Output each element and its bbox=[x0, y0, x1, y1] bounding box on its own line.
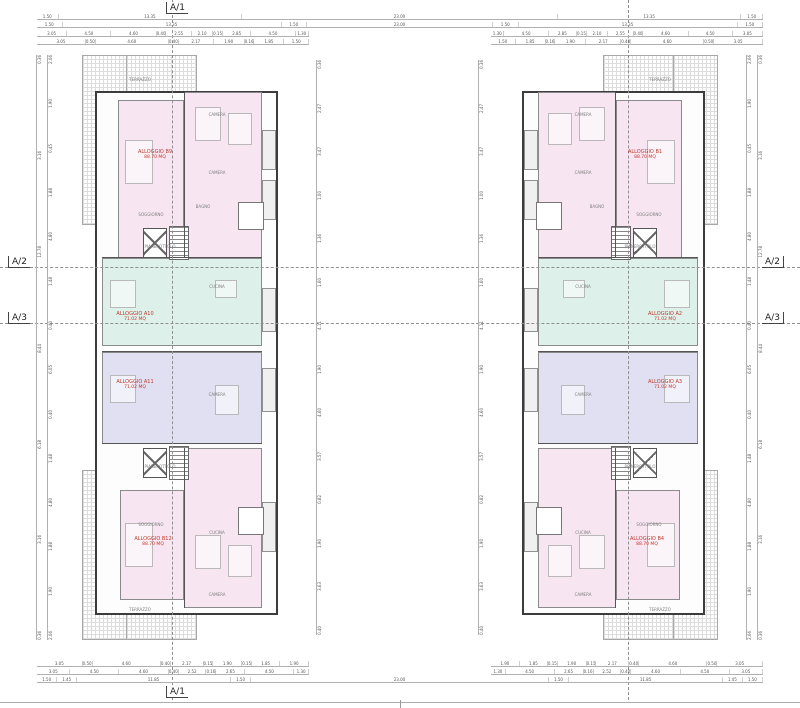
building-left-room-label: SOGGIORNO bbox=[138, 213, 163, 217]
dimension-value: 4.50 bbox=[689, 31, 733, 36]
axis-marker-a2-right: A/2 bbox=[762, 256, 784, 268]
dimension-value: 1.90 bbox=[747, 99, 754, 108]
dimension-value: 1.50 bbox=[741, 14, 763, 19]
dimension-value: 1.85 bbox=[516, 39, 546, 44]
dimension-value: 1.50 bbox=[738, 22, 764, 27]
dimension-row: 1.5013.3523.0013.351.50 bbox=[37, 13, 763, 20]
building-right-room-label: CUCINA bbox=[575, 285, 590, 289]
dimension-value: 1.45 bbox=[57, 677, 77, 682]
dimension-value: 0.15 bbox=[548, 661, 558, 666]
floor-plan-drawing: A/1 A/1 A/2 A/2 A/3 A/3 1.5013.3523.0013… bbox=[0, 0, 800, 708]
axis-marker-a3-left: A/3 bbox=[8, 312, 30, 324]
axis-dash-vertical bbox=[172, 0, 173, 700]
dimension-value: 1.60 bbox=[479, 278, 486, 287]
dimension-value: 4.50 bbox=[681, 669, 730, 674]
building-left-furniture bbox=[228, 545, 252, 577]
building-left-balcony bbox=[262, 288, 276, 332]
building-left-balcony bbox=[262, 180, 276, 220]
building-right-apartment-label: ALLOGGIO B488.70 MQ bbox=[630, 536, 664, 548]
dimension-value: 0.36 bbox=[758, 55, 765, 64]
dimension-value: 6.05 bbox=[48, 365, 55, 374]
axis-marker-a1-bottom: A/1 bbox=[166, 686, 188, 698]
dimension-value: 4.60 bbox=[93, 661, 161, 666]
building-right-wall bbox=[615, 92, 616, 258]
dimension-value: 6.18 bbox=[758, 440, 765, 449]
dimension-value: 1.90 bbox=[317, 365, 324, 374]
dimension-column: 2.061.900.451.884.801.480.406.050.401.48… bbox=[746, 55, 754, 640]
dimension-value: 1.88 bbox=[747, 542, 754, 551]
building-left-room-label: BAGNO bbox=[196, 205, 211, 209]
building-right-balcony bbox=[524, 288, 538, 332]
building-right-wall bbox=[538, 351, 698, 352]
building-left-technical-room bbox=[238, 507, 264, 535]
dimension-value: 2.06 bbox=[747, 55, 754, 64]
dimension-value: 2.17 bbox=[171, 661, 204, 666]
building-left-furniture bbox=[110, 280, 136, 308]
building-right-wall bbox=[538, 443, 698, 444]
building-left-apartment-label: ALLOGGIO A1071.02 MQ bbox=[116, 311, 153, 323]
dimension-value: 4.80 bbox=[747, 232, 754, 241]
building-right-room-label: CAMERA bbox=[575, 171, 592, 175]
dimension-value: 0.45 bbox=[48, 144, 55, 153]
dimension-value: 4.50 bbox=[506, 669, 555, 674]
dimension-row: 23.00 bbox=[307, 21, 493, 28]
dimension-value: 2.52 bbox=[594, 669, 622, 674]
dimension-value: 0.40 bbox=[621, 39, 631, 44]
dimension-value: 2.47 bbox=[479, 104, 486, 113]
dimension-value: 0.40 bbox=[479, 626, 486, 635]
building-right-technical-room bbox=[536, 202, 562, 230]
apartment-area: 71.02 MQ bbox=[116, 385, 153, 391]
building-right-elevator-shaft bbox=[633, 448, 657, 478]
building-left-wall bbox=[102, 351, 262, 352]
building-right-room-label: SOGGIORNO bbox=[636, 213, 661, 217]
dimension-value: 4.60 bbox=[479, 408, 486, 417]
building-left-apartment-label: ALLOGGIO B988.70 MQ bbox=[138, 149, 172, 161]
building-right-technical-room bbox=[536, 507, 562, 535]
dimension-value: 2.52 bbox=[179, 669, 207, 674]
dimension-value: 3.16 bbox=[37, 535, 44, 544]
building-left-wall bbox=[184, 448, 185, 608]
dimension-value: 3.05 bbox=[717, 661, 763, 666]
dimension-value: 0.40 bbox=[747, 410, 754, 419]
axis-dash-horizontal bbox=[0, 267, 800, 268]
dimension-value: 2.85 bbox=[549, 31, 577, 36]
dimension-value: 0.40 bbox=[169, 669, 179, 674]
dimension-value: 1.90 bbox=[479, 365, 486, 374]
building-left-furniture bbox=[228, 113, 252, 145]
axis-marker-a1-top: A/1 bbox=[166, 2, 188, 14]
dimension-row: 1.304.502.650.162.520.404.604.503.05 bbox=[491, 668, 763, 675]
building-left-room-label: CUCINA bbox=[209, 531, 224, 535]
dimension-value: 2.65 bbox=[216, 669, 245, 674]
dimension-value: 3.57 bbox=[317, 452, 324, 461]
dimension-value: 0.82 bbox=[317, 495, 324, 504]
building-left-elevator-shaft bbox=[143, 448, 167, 478]
building-left-room-label: PIANEROTTOLO bbox=[145, 465, 176, 469]
dimension-row: 1.304.502.850.152.102.550.404.604.503.05 bbox=[491, 30, 763, 37]
building-right-room-label: CAMERA bbox=[575, 393, 592, 397]
dimension-value: 1.50 bbox=[37, 677, 57, 682]
dimension-value: 4.50 bbox=[67, 31, 111, 36]
building-left-room-label: CAMERA bbox=[209, 593, 226, 597]
dimension-value: 4.80 bbox=[48, 498, 55, 507]
dimension-value: 4.60 bbox=[119, 669, 169, 674]
dimension-value: 23.00 bbox=[242, 14, 558, 19]
dimension-value: 1.50 bbox=[37, 22, 63, 27]
apartment-area: 88.70 MQ bbox=[630, 542, 664, 548]
dimension-value: 0.50 bbox=[83, 661, 93, 666]
dimension-value: 1.50 bbox=[549, 677, 569, 682]
building-right-room-label: CAMERA bbox=[575, 113, 592, 117]
dimension-value: 23.00 bbox=[251, 677, 549, 682]
building-right-room-label: CAMERA bbox=[575, 593, 592, 597]
dimension-value: 1.30 bbox=[491, 31, 504, 36]
building-right-wall bbox=[538, 257, 698, 258]
dimension-value: 0.15 bbox=[587, 661, 597, 666]
dimension-value: 1.45 bbox=[723, 677, 743, 682]
building-left-furniture bbox=[125, 140, 153, 184]
dimension-value: 4.50 bbox=[251, 31, 295, 36]
dimension-value: 0.40 bbox=[634, 31, 644, 36]
dimension-value: 4.60 bbox=[317, 408, 324, 417]
dimension-value: 3.63 bbox=[317, 582, 324, 591]
dimension-value: 2.06 bbox=[48, 631, 55, 640]
dimension-value: 2.17 bbox=[596, 661, 629, 666]
building-left-room-label: CAMERA bbox=[209, 393, 226, 397]
dimension-value: 1.48 bbox=[747, 454, 754, 463]
dimension-value: 0.40 bbox=[161, 661, 171, 666]
dimension-value: 4.60 bbox=[631, 669, 681, 674]
building-right-furniture bbox=[548, 545, 572, 577]
dimension-value: 2.06 bbox=[48, 55, 55, 64]
dimension-value: 6.05 bbox=[747, 365, 754, 374]
dimension-value: 0.82 bbox=[479, 495, 486, 504]
dimension-value: 1.50 bbox=[284, 39, 309, 44]
building-left-room-label: TERRAZZO bbox=[129, 78, 151, 82]
axis-dash-vertical bbox=[628, 0, 629, 700]
dimension-value: 0.36 bbox=[317, 60, 324, 69]
dimension-value: 0.50 bbox=[707, 661, 717, 666]
dimension-value: 1.50 bbox=[231, 677, 251, 682]
dimension-value: 1.85 bbox=[254, 39, 284, 44]
dimension-value: 0.40 bbox=[48, 410, 55, 419]
dimension-value: 3.16 bbox=[758, 151, 765, 160]
building-right-room-label: TERRAZZO bbox=[649, 608, 671, 612]
dimension-value: 1.85 bbox=[252, 661, 280, 666]
building-left-room-label: CUCINA bbox=[209, 285, 224, 289]
dimension-value: 3.05 bbox=[37, 661, 83, 666]
dimension-value: 1.90 bbox=[214, 39, 245, 44]
dimension-value: 2.17 bbox=[179, 39, 214, 44]
building-right-room-label: PIANEROTTOLO bbox=[625, 465, 656, 469]
dimension-row: 1.901.850.151.900.152.170.404.600.503.05 bbox=[491, 660, 763, 667]
building-right-furniture bbox=[664, 280, 690, 308]
dimension-value: 2.10 bbox=[192, 31, 213, 36]
dimension-value: 0.45 bbox=[747, 144, 754, 153]
building-right-room-label: PIANEROTTOLO bbox=[625, 245, 656, 249]
dimension-value: 4.60 bbox=[643, 31, 688, 36]
dimension-row: 3.054.504.600.402.520.162.654.501.30 bbox=[37, 668, 309, 675]
dimension-value: 0.15 bbox=[242, 661, 252, 666]
dimension-value: 4.60 bbox=[111, 31, 156, 36]
building-left-furniture bbox=[215, 385, 239, 415]
axis-marker-a2-left: A/2 bbox=[8, 256, 30, 268]
apartment-area: 71.02 MQ bbox=[648, 385, 682, 391]
dimension-value: 1.90 bbox=[48, 587, 55, 596]
dimension-value: 2.17 bbox=[586, 39, 621, 44]
dimension-value: 3.16 bbox=[37, 151, 44, 160]
dimension-value: 1.50 bbox=[282, 22, 308, 27]
dimension-value: 1.30 bbox=[294, 669, 309, 674]
dimension-value: 1.50 bbox=[493, 22, 519, 27]
dimension-value: 0.16 bbox=[206, 669, 216, 674]
dimension-value: 1.90 bbox=[479, 539, 486, 548]
building-right-wall bbox=[615, 448, 616, 608]
dimension-value: 3.47 bbox=[317, 147, 324, 156]
building-right-balcony bbox=[524, 368, 538, 412]
building-left-wall bbox=[102, 443, 262, 444]
dimension-value: 1.90 bbox=[555, 39, 586, 44]
dimension-value: 1.48 bbox=[747, 277, 754, 286]
dimension-value: 1.36 bbox=[479, 234, 486, 243]
dimension-value: 1.90 bbox=[213, 661, 242, 666]
building-right-apartment-label: ALLOGGIO A371.02 MQ bbox=[648, 379, 682, 391]
dimension-value: 1.48 bbox=[48, 454, 55, 463]
apartment-area: 88.70 MQ bbox=[134, 542, 171, 548]
dimension-value: 4.11 bbox=[317, 321, 324, 330]
dimension-value: 0.40 bbox=[747, 321, 754, 330]
building-left-furniture bbox=[215, 280, 237, 298]
dimension-value: 3.05 bbox=[733, 31, 763, 36]
building-left-elevator-shaft bbox=[143, 228, 167, 258]
dimension-value: 0.50 bbox=[704, 39, 714, 44]
apartment-area: 71.02 MQ bbox=[116, 317, 153, 323]
dimension-value: 0.36 bbox=[758, 631, 765, 640]
dimension-value: 4.60 bbox=[96, 39, 169, 44]
dimension-value: 4.60 bbox=[639, 661, 707, 666]
dimension-value: 2.06 bbox=[747, 631, 754, 640]
dimension-value: 1.90 bbox=[491, 661, 520, 666]
building-left-technical-room bbox=[238, 202, 264, 230]
dimension-value: 0.40 bbox=[629, 661, 639, 666]
building-left-balcony bbox=[262, 368, 276, 412]
dimension-value: 0.15 bbox=[204, 661, 214, 666]
building-right-furniture bbox=[579, 535, 605, 569]
building-right-furniture bbox=[647, 140, 675, 184]
dimension-row: 1.501.4511.851.5023.001.5011.851.451.50 bbox=[37, 676, 763, 683]
dimension-value: 4.50 bbox=[504, 31, 548, 36]
building-left-apartment-label: ALLOGGIO A1171.02 MQ bbox=[116, 379, 153, 391]
dimension-value: 1.90 bbox=[747, 587, 754, 596]
dimension-value: 3.05 bbox=[730, 669, 763, 674]
building-right-furniture bbox=[563, 280, 585, 298]
building-left-room-label: SOGGIORNO bbox=[138, 523, 163, 527]
dimension-column: 0.363.1612.788.446.183.160.36 bbox=[36, 55, 44, 640]
dimension-value: 1.85 bbox=[520, 661, 548, 666]
building-left-room-label: PIANEROTTOLO bbox=[145, 245, 176, 249]
building-right-balcony bbox=[524, 130, 538, 170]
dimension-value: 0.16 bbox=[546, 39, 556, 44]
dimension-value: 13.35 bbox=[519, 22, 738, 27]
building-left-room-label: CAMERA bbox=[209, 113, 226, 117]
dimension-value: 2.55 bbox=[608, 31, 633, 36]
building-right-apartment-label: ALLOGGIO B188.70 MQ bbox=[628, 149, 662, 161]
dimension-value: 6.18 bbox=[37, 440, 44, 449]
dimension-value: 1.48 bbox=[48, 277, 55, 286]
apartment-area: 88.70 MQ bbox=[628, 155, 662, 161]
dimension-value: 1.50 bbox=[743, 677, 763, 682]
building-left-balcony bbox=[262, 130, 276, 170]
dimension-value: 0.40 bbox=[48, 321, 55, 330]
dimension-value: 3.05 bbox=[714, 39, 763, 44]
axis-marker-a3-right: A/3 bbox=[762, 312, 784, 324]
dimension-value: 13.35 bbox=[63, 22, 282, 27]
dimension-value: 0.40 bbox=[169, 39, 179, 44]
dimension-value: 4.50 bbox=[70, 669, 119, 674]
sheet-center-tick bbox=[400, 700, 401, 708]
dimension-column: 0.363.1612.788.446.183.160.36 bbox=[757, 55, 765, 640]
dimension-value: 4.50 bbox=[245, 669, 294, 674]
dimension-value: 23.00 bbox=[307, 22, 493, 27]
building-right-room-label: SOGGIORNO bbox=[636, 523, 661, 527]
building-right-room-label: TERRAZZO bbox=[649, 78, 671, 82]
dimension-value: 13.35 bbox=[558, 14, 742, 19]
dimension-value: 2.55 bbox=[166, 31, 191, 36]
dimension-value: 4.80 bbox=[48, 232, 55, 241]
dimension-value: 3.05 bbox=[37, 669, 70, 674]
building-right-room-label: BAGNO bbox=[590, 205, 605, 209]
dimension-value: 3.47 bbox=[479, 147, 486, 156]
building-left-furniture bbox=[195, 535, 221, 569]
dimension-value: 1.90 bbox=[558, 661, 587, 666]
building-right-furniture bbox=[548, 113, 572, 145]
dimension-value: 2.10 bbox=[587, 31, 608, 36]
building-left-wall bbox=[102, 257, 262, 258]
apartment-area: 88.70 MQ bbox=[138, 155, 172, 161]
dimension-value: 11.85 bbox=[77, 677, 231, 682]
dimension-value: 1.88 bbox=[747, 188, 754, 197]
dimension-value: 2.85 bbox=[223, 31, 251, 36]
dimension-value: 0.36 bbox=[37, 631, 44, 640]
dimension-value: 4.60 bbox=[631, 39, 704, 44]
dimension-value: 1.90 bbox=[48, 99, 55, 108]
dimension-value: 3.16 bbox=[758, 535, 765, 544]
building-left-room-label: CAMERA bbox=[209, 171, 226, 175]
dimension-value: 12.78 bbox=[37, 246, 44, 257]
dimension-value: 8.44 bbox=[758, 344, 765, 353]
building-right-room-label: CUCINA bbox=[575, 531, 590, 535]
building-right-elevator-shaft bbox=[633, 228, 657, 258]
dimension-value: 1.60 bbox=[317, 278, 324, 287]
dimension-value: 3.57 bbox=[479, 452, 486, 461]
dimension-column: 0.362.473.471.001.361.604.111.904.603.57… bbox=[316, 60, 324, 635]
dimension-value: 0.36 bbox=[479, 60, 486, 69]
dimension-value: 1.88 bbox=[48, 188, 55, 197]
dimension-value: 3.05 bbox=[37, 31, 67, 36]
dimension-row: 3.050.504.600.402.170.151.900.151.851.90 bbox=[37, 660, 309, 667]
dimension-value: 0.16 bbox=[584, 669, 594, 674]
building-left-apartment-label: ALLOGGIO B1288.70 MQ bbox=[134, 536, 171, 548]
dimension-value: 1.30 bbox=[491, 669, 506, 674]
dimension-value: 1.00 bbox=[479, 191, 486, 200]
building-right-furniture bbox=[561, 385, 585, 415]
dimension-value: 0.15 bbox=[577, 31, 587, 36]
apartment-area: 71.02 MQ bbox=[648, 317, 682, 323]
dimension-value: 3.63 bbox=[479, 582, 486, 591]
dimension-value: 0.40 bbox=[157, 31, 167, 36]
building-left-balcony bbox=[262, 502, 276, 552]
dimension-value: 0.36 bbox=[37, 55, 44, 64]
building-left-room-label: TERRAZZO bbox=[129, 608, 151, 612]
dimension-value: 8.44 bbox=[37, 344, 44, 353]
building-right-apartment-label: ALLOGGIO A271.02 MQ bbox=[648, 311, 682, 323]
dimension-value: 4.80 bbox=[747, 498, 754, 507]
axis-dash-horizontal bbox=[0, 323, 800, 324]
dimension-value: 13.35 bbox=[59, 14, 243, 19]
dimension-row: 1.5013.351.50 bbox=[37, 21, 307, 28]
dimension-value: 0.40 bbox=[621, 669, 631, 674]
dimension-value: 2.65 bbox=[555, 669, 584, 674]
dimension-value: 0.50 bbox=[86, 39, 96, 44]
dimension-value: 1.50 bbox=[491, 39, 516, 44]
building-left-wall bbox=[184, 92, 185, 258]
dimension-value: 11.85 bbox=[569, 677, 723, 682]
dimension-row: 1.501.850.161.902.170.404.600.503.05 bbox=[491, 38, 763, 45]
dimension-value: 0.16 bbox=[245, 39, 255, 44]
dimension-value: 1.90 bbox=[280, 661, 309, 666]
dimension-column: 2.061.900.451.884.801.480.406.050.401.48… bbox=[47, 55, 55, 640]
dimension-value: 1.30 bbox=[296, 31, 309, 36]
dimension-value: 1.00 bbox=[317, 191, 324, 200]
dimension-value: 1.90 bbox=[317, 539, 324, 548]
dimension-value: 1.36 bbox=[317, 234, 324, 243]
dimension-row: 3.054.504.600.402.552.100.152.854.501.30 bbox=[37, 30, 309, 37]
dimension-value: 3.05 bbox=[37, 39, 86, 44]
dimension-value: 0.15 bbox=[213, 31, 223, 36]
dimension-row: 1.5013.351.50 bbox=[493, 21, 763, 28]
dimension-value: 2.47 bbox=[317, 104, 324, 113]
dimension-value: 1.88 bbox=[48, 542, 55, 551]
dimension-value: 1.50 bbox=[37, 14, 59, 19]
dimension-column: 0.362.473.471.001.361.604.111.904.603.57… bbox=[478, 60, 486, 635]
dimension-value: 0.40 bbox=[317, 626, 324, 635]
dimension-row: 3.050.504.600.402.171.900.161.851.50 bbox=[37, 38, 309, 45]
dimension-value: 4.11 bbox=[479, 321, 486, 330]
